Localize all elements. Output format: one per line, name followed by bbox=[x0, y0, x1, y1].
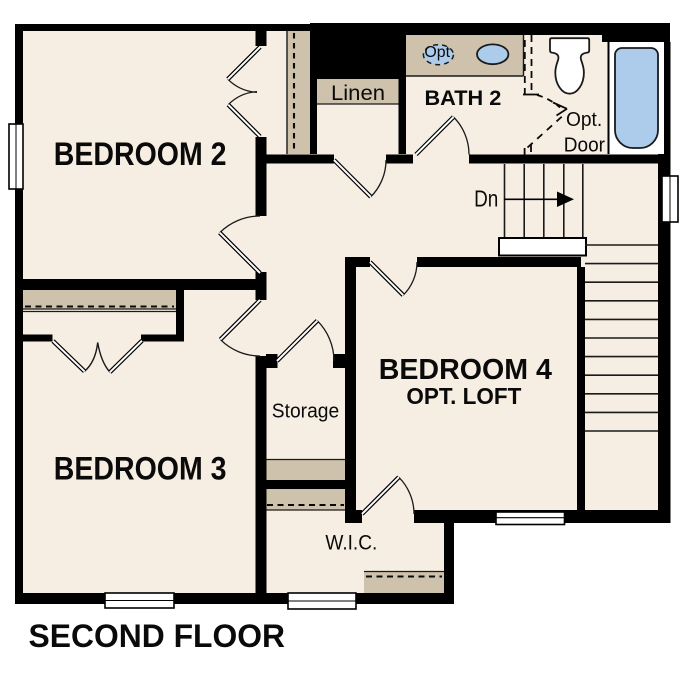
svg-text:BEDROOM 4: BEDROOM 4 bbox=[379, 354, 552, 386]
svg-text:BEDROOM 2: BEDROOM 2 bbox=[54, 136, 227, 172]
svg-text:Linen: Linen bbox=[331, 82, 385, 105]
svg-text:W.I.C.: W.I.C. bbox=[325, 532, 377, 555]
svg-text:Storage: Storage bbox=[272, 400, 339, 422]
svg-text:OPT. LOFT: OPT. LOFT bbox=[406, 383, 521, 409]
svg-text:SECOND FLOOR: SECOND FLOOR bbox=[29, 618, 286, 654]
svg-text:Dn: Dn bbox=[474, 186, 498, 212]
svg-text:BEDROOM 3: BEDROOM 3 bbox=[54, 451, 227, 487]
svg-text:Opt.: Opt. bbox=[566, 109, 602, 131]
svg-text:Door: Door bbox=[564, 134, 606, 156]
svg-text:BATH 2: BATH 2 bbox=[425, 86, 502, 110]
svg-text:Opt: Opt bbox=[424, 44, 450, 61]
